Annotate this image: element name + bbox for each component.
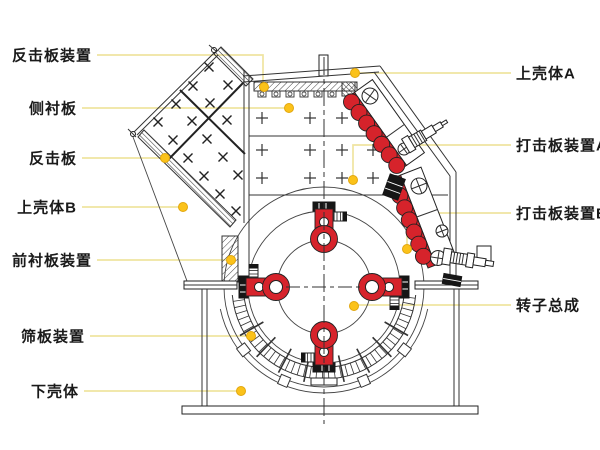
label-rotor-assembly: 转子总成 bbox=[516, 295, 580, 316]
leader-dot-5 bbox=[247, 332, 256, 341]
label-screen-plate-device: 筛板装置 bbox=[21, 326, 85, 347]
label-front-liner-device: 前衬板装置 bbox=[12, 250, 92, 271]
label-side-liner: 侧衬板 bbox=[29, 98, 77, 119]
label-upper-shell-b: 上壳体B bbox=[17, 197, 77, 218]
leader-dot-4 bbox=[227, 256, 236, 265]
label-impact-plate: 反击板 bbox=[29, 148, 77, 169]
leader-dot-7 bbox=[351, 69, 360, 78]
leader-dot-10 bbox=[350, 302, 359, 311]
label-impact-plate-device: 反击板装置 bbox=[12, 45, 92, 66]
label-striking-plate-device-a: 打击板装置A bbox=[516, 135, 600, 156]
label-striking-plate-device-b: 打击板装置B bbox=[516, 203, 600, 224]
crusher-structure-diagram: 反击板装置 侧衬板 反击板 上壳体B 前衬板装置 筛板装置 下壳体 上壳体A 打… bbox=[0, 0, 600, 450]
leader-dot-1 bbox=[285, 104, 294, 113]
leader-dot-3 bbox=[179, 203, 188, 212]
leader-dots-layer bbox=[0, 0, 600, 450]
leader-dot-0 bbox=[260, 83, 269, 92]
leader-dot-9 bbox=[403, 245, 412, 254]
leader-dot-8 bbox=[349, 176, 358, 185]
label-lower-shell: 下壳体 bbox=[31, 381, 79, 402]
leader-dot-2 bbox=[161, 154, 170, 163]
leader-dot-6 bbox=[237, 387, 246, 396]
label-upper-shell-a: 上壳体A bbox=[516, 63, 576, 84]
